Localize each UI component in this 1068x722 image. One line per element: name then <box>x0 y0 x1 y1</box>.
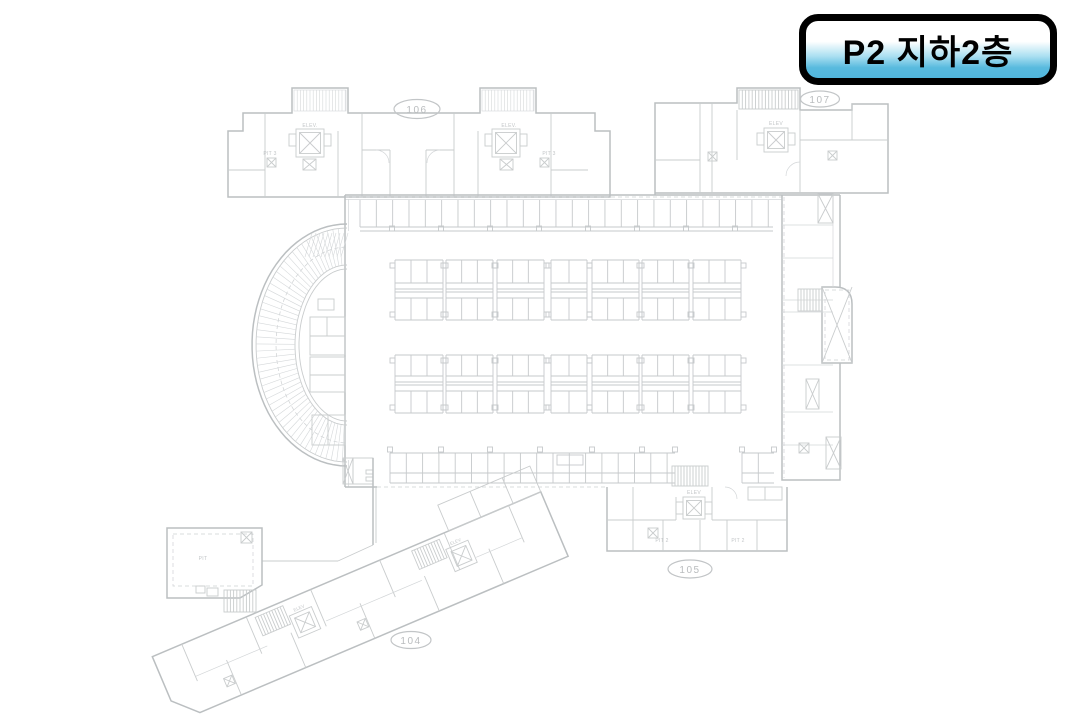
floor-plan-page: ELEV. ELEV. PIT 3 PIT 3 106 ELEV 107 <box>0 0 1068 722</box>
stair-hatch <box>672 466 708 486</box>
parking-garage <box>252 194 852 561</box>
elevator-symbol <box>757 128 795 152</box>
unit-106-block: ELEV. ELEV. PIT 3 PIT 3 106 <box>228 88 610 197</box>
elev-label-104-b: ELEV <box>449 537 462 546</box>
shaft-x-symbol <box>826 437 841 469</box>
pit3-label-left: PIT 3 <box>263 151 276 157</box>
shaft-x-symbol <box>300 133 321 154</box>
unit-107-interior <box>655 90 888 193</box>
elev-label-104-a: ELEV <box>293 604 306 613</box>
unit-107-tag: 107 <box>809 95 830 106</box>
parking-stalls-island-row-1 <box>390 260 746 320</box>
pit-room-interior <box>173 532 256 612</box>
pit2-label-right: PIT 2 <box>731 538 744 544</box>
elevator-symbol <box>289 129 331 157</box>
pit-label: PIT <box>199 556 208 562</box>
shaft-x-symbol <box>687 501 702 516</box>
stair-hatch <box>294 90 346 111</box>
wing-104-tag: 104 <box>400 636 421 647</box>
unit-107-outline <box>655 88 888 195</box>
right-annex-rooms <box>782 194 852 480</box>
stair-hatch <box>739 90 798 109</box>
pit2-label-left: PIT 2 <box>655 538 668 544</box>
parking-perimeter-walls <box>345 195 840 487</box>
shaft-x-symbol <box>818 194 833 223</box>
unit-106-tag: 106 <box>406 105 427 116</box>
elev-label-105: ELEV <box>687 490 701 496</box>
curved-ramp-hatch <box>256 229 348 462</box>
pit3-label-right: PIT 3 <box>542 151 555 157</box>
wing-104-block: ELEV ELEV 104 <box>141 466 568 721</box>
elev-label-106-left: ELEV. <box>302 123 317 129</box>
elev-label-107: ELEV <box>769 121 783 127</box>
shaft-x-symbol <box>295 612 316 633</box>
parking-stalls-top-row <box>360 200 773 231</box>
wing-104-rotated: ELEV ELEV <box>141 466 568 721</box>
pit-room: PIT <box>167 528 262 612</box>
shaft-x-symbol <box>799 443 809 453</box>
stair-hatch <box>224 590 256 612</box>
floor-badge-label: P2 지하2층 <box>843 25 1014 74</box>
unit-105-tag: 105 <box>679 565 700 576</box>
elev-label-106-right: ELEV. <box>501 123 516 129</box>
parking-stalls-island-row-2 <box>390 355 746 413</box>
floor-badge: P2 지하2층 <box>799 14 1057 85</box>
unit-105-interior <box>607 466 787 551</box>
shaft-x-symbol <box>768 132 785 149</box>
unit-107-block: ELEV 107 <box>655 88 888 195</box>
shaft-x-symbol <box>806 379 819 409</box>
shaft-x-symbol <box>708 152 717 161</box>
southwest-connector <box>262 458 607 561</box>
parking-stalls-bottom-row <box>388 447 777 483</box>
shaft-x-symbol <box>828 151 837 160</box>
shaft-x-symbol <box>303 159 316 170</box>
stair-hatch <box>482 90 534 111</box>
floor-plan-drawing: ELEV. ELEV. PIT 3 PIT 3 106 ELEV 107 <box>0 0 1068 722</box>
shaft-x-symbol <box>648 528 658 538</box>
shaft-x-symbol <box>267 158 276 167</box>
elevator-symbol <box>676 497 712 519</box>
